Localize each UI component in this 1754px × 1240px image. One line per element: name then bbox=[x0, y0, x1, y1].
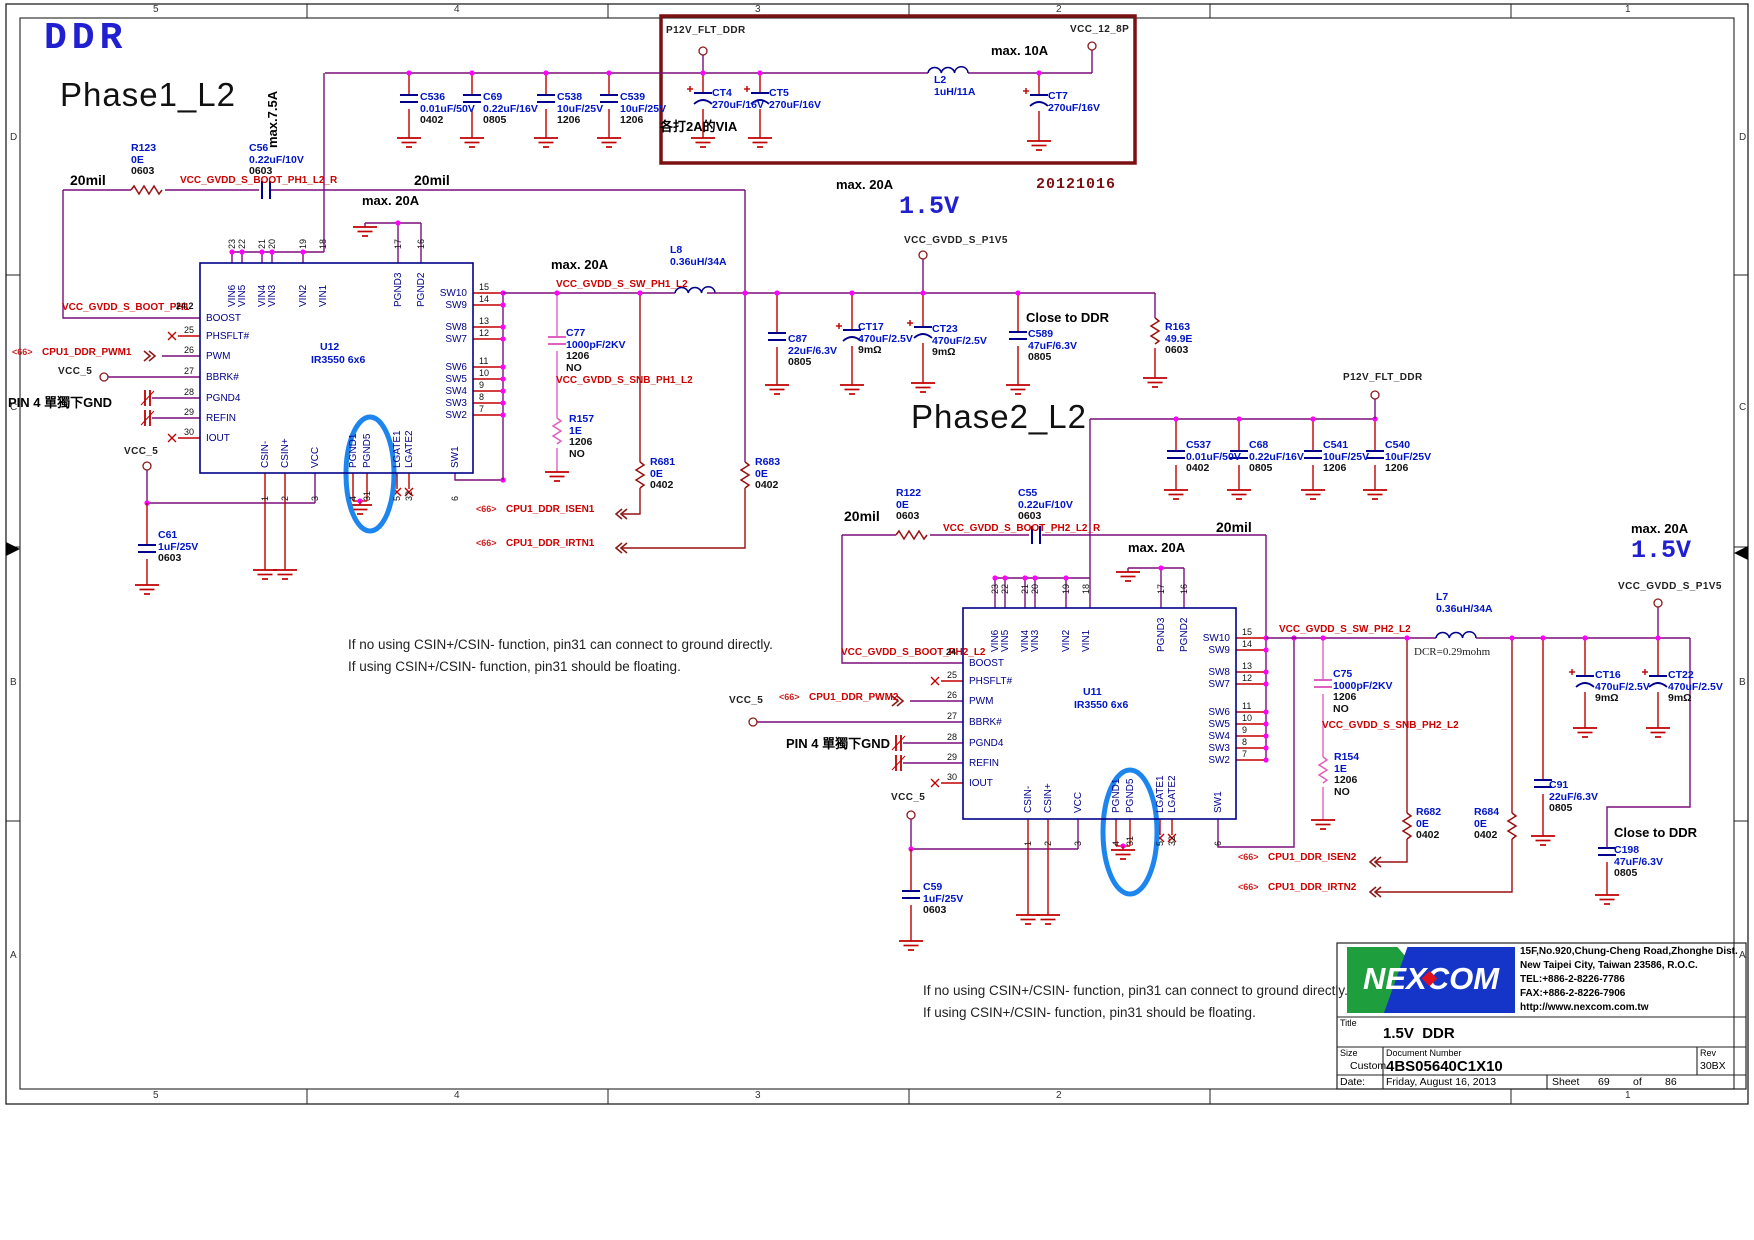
ic-right_pins-4-name: SW6 bbox=[445, 362, 467, 373]
comp-r682-ref: R682 bbox=[1416, 807, 1441, 818]
csin-note2-1: If using CSIN+/CSIN- function, pin31 sho… bbox=[348, 660, 681, 674]
ic-left_pins-2-name: PWM bbox=[969, 696, 993, 707]
grid-col-bot-0: 5 bbox=[153, 1091, 159, 1101]
comp-r123-fp: 0603 bbox=[131, 166, 154, 177]
comp-c589-fp: 0805 bbox=[1028, 352, 1051, 363]
grid-row-right-0: D bbox=[1739, 133, 1746, 143]
comp-c91-ref: C91 bbox=[1549, 780, 1568, 791]
ic-left_pins-5-name: REFIN bbox=[969, 758, 999, 769]
ic-left_pins-4-name: PGND4 bbox=[206, 393, 241, 404]
comp-c55-fp: 0603 bbox=[1018, 511, 1041, 522]
ic-top_pins-3-num: 20 bbox=[267, 239, 277, 249]
comp-ct22-val: 470uF/2.5V bbox=[1668, 682, 1723, 693]
ic-right_pins-6-num: 9 bbox=[1242, 725, 1247, 735]
comp-ct16-fp: 9mΩ bbox=[1595, 693, 1619, 704]
ic-left_pins-6-num: 30 bbox=[184, 427, 194, 437]
ic-left_pins-3-num: 27 bbox=[184, 366, 194, 376]
ic-top_pins-4-name: VIN2 bbox=[1061, 629, 1072, 652]
ic-right_pins-4-name: SW6 bbox=[1208, 707, 1230, 718]
ic-bottom_pins-1-num: 2 bbox=[280, 496, 290, 501]
ic-bottom_pins-7-num: 6 bbox=[1213, 841, 1223, 846]
ic-bottom_pins-3-num: 4 bbox=[1111, 841, 1121, 846]
ic-right_pins-0-name: SW10 bbox=[440, 288, 468, 299]
comp-r683-fp: 0402 bbox=[755, 480, 778, 491]
ic-bottom_pins-1-name: CSIN+ bbox=[1043, 783, 1054, 813]
ic-left_pins-1-name: PHSFLT# bbox=[206, 331, 250, 342]
ic-bottom_pins-5-name: LGATE1 bbox=[1155, 775, 1166, 813]
tb-size_value: Custom bbox=[1350, 1061, 1386, 1072]
comp-c541-val: 10uF/25V bbox=[1323, 452, 1369, 463]
ic-top_pins-6-num: 17 bbox=[1156, 584, 1166, 594]
ic-right_pins-8-num: 7 bbox=[1242, 749, 1247, 759]
comp-c198-ref: C198 bbox=[1614, 845, 1639, 856]
comp-ct23-val: 470uF/2.5V bbox=[932, 336, 987, 347]
comp-ct23-fp: 9mΩ bbox=[932, 347, 956, 358]
ic-left_pins-3-name: BBRK# bbox=[969, 717, 1002, 728]
comp-r681-fp: 0402 bbox=[650, 480, 673, 491]
comp-ct22-ref: CT22 bbox=[1668, 670, 1694, 681]
comp-ct5-val: 270uF/16V bbox=[769, 100, 821, 111]
ref66-irtn1: <66> bbox=[476, 539, 497, 548]
grid-col-top-0: 5 bbox=[153, 5, 159, 15]
ic-bottom_pins-6-num: 32 bbox=[1167, 836, 1177, 846]
ic-left_pins-6-name: IOUT bbox=[206, 433, 230, 444]
comp-c69-ref: C69 bbox=[483, 92, 502, 103]
comp-r681-val: 0E bbox=[650, 469, 663, 480]
comp-c538-val: 10uF/25V bbox=[557, 104, 603, 115]
ic-left_pins-1-num: 25 bbox=[184, 325, 194, 335]
comp-ct7-ref: CT7 bbox=[1048, 91, 1068, 102]
ic-left_pins-4-num: 28 bbox=[947, 732, 957, 742]
comp-c56-ref: C56 bbox=[249, 143, 268, 154]
ic-right_pins-5-name: SW5 bbox=[445, 374, 467, 385]
nets-boot2: VCC_GVDD_S_BOOT_PH2_L2 bbox=[841, 648, 986, 658]
ic-left_pins-3-num: 27 bbox=[947, 711, 957, 721]
comp-c91-val: 22uF/6.3V bbox=[1549, 792, 1598, 803]
nets-boot1r: VCC_GVDD_S_BOOT_PH1_L2_R bbox=[180, 176, 337, 186]
tb-size_label: Size bbox=[1340, 1049, 1358, 1058]
csin-note2-2: If using CSIN+/CSIN- function, pin31 sho… bbox=[923, 1006, 1256, 1020]
tb-addr1: 15F,No.920,Chung-Cheng Road,Zhonghe Dist… bbox=[1520, 947, 1738, 957]
close-ddr-2: Close to DDR bbox=[1614, 826, 1697, 839]
grid-row-left-2: B bbox=[10, 678, 17, 688]
comp-c68-ref: C68 bbox=[1249, 440, 1268, 451]
nets-snb1: VCC_GVDD_S_SNB_PH1_L2 bbox=[556, 376, 693, 386]
ic-right_pins-2-name: SW8 bbox=[1208, 667, 1230, 678]
ic-top_pins-6-name: PGND3 bbox=[393, 272, 404, 307]
ref66-isen2: <66> bbox=[1238, 853, 1259, 862]
port-p1v5-2: VCC_GVDD_S_P1V5 bbox=[1618, 582, 1722, 592]
comp-ct5-ref: CT5 bbox=[769, 88, 789, 99]
ic-top_pins-4-num: 19 bbox=[1061, 584, 1071, 594]
comp-c56-fp: 0603 bbox=[249, 166, 272, 177]
comp-r163-ref: R163 bbox=[1165, 322, 1190, 333]
ic-bottom_pins-5-num: 5 bbox=[392, 496, 402, 501]
ic-right_pins-5-name: SW5 bbox=[1208, 719, 1230, 730]
ic-bottom_pins-2-num: 3 bbox=[310, 496, 320, 501]
ic-top_pins-6-num: 17 bbox=[393, 239, 403, 249]
comp-ct17-val: 470uF/2.5V bbox=[858, 334, 913, 345]
pin4-note-2: PIN 4 單獨下GND bbox=[786, 737, 890, 750]
tb-fax: FAX:+886-2-8226-7906 bbox=[1520, 989, 1625, 999]
comp-c539-fp: 1206 bbox=[620, 115, 643, 126]
close-ddr-1: Close to DDR bbox=[1026, 311, 1109, 324]
nets-isen1: CPU1_DDR_ISEN1 bbox=[506, 505, 594, 515]
ic-right_pins-6-name: SW4 bbox=[1208, 731, 1230, 742]
max-20a-5: max. 20A bbox=[1631, 522, 1688, 535]
ic-right_pins-0-num: 15 bbox=[1242, 627, 1252, 637]
ic-u12-ref: U12 bbox=[320, 342, 339, 353]
ic-right_pins-5-num: 10 bbox=[1242, 713, 1252, 723]
mil20-2: 20mil bbox=[414, 173, 450, 187]
comp-c75-fp: 1206 bbox=[1333, 692, 1356, 703]
ic-bottom_pins-5-name: LGATE1 bbox=[392, 430, 403, 468]
comp-r681-ref: R681 bbox=[650, 457, 675, 468]
comp-c537-ref: C537 bbox=[1186, 440, 1211, 451]
grid-row-right-2: B bbox=[1739, 678, 1746, 688]
comp-c55-val: 0.22uF/10V bbox=[1018, 500, 1073, 511]
tb-rev_label: Rev bbox=[1700, 1049, 1716, 1058]
ic-top_pins-0-num: 23 bbox=[227, 239, 237, 249]
comp-r163-val: 49.9E bbox=[1165, 334, 1192, 345]
grid-row-left-0: D bbox=[10, 133, 17, 143]
ic-bottom_pins-6-name: LGATE2 bbox=[1167, 775, 1178, 813]
comp-r154-val: 1E bbox=[1334, 764, 1347, 775]
comp-l8-val: 0.36uH/34A bbox=[670, 257, 727, 268]
csin-note1-2: If no using CSIN+/CSIN- function, pin31 … bbox=[923, 984, 1348, 998]
comp-ct17-ref: CT17 bbox=[858, 322, 884, 333]
ic-left_pins-1-name: PHSFLT# bbox=[969, 676, 1013, 687]
ic-top_pins-1-num: 22 bbox=[237, 239, 247, 249]
comp-c77-ref: C77 bbox=[566, 328, 585, 339]
ic-left_pins-0-name: BOOST bbox=[206, 313, 241, 324]
comp-r683-val: 0E bbox=[755, 469, 768, 480]
nets-boot2r: VCC_GVDD_S_BOOT_PH2_L2_R bbox=[943, 524, 1100, 534]
ic-top_pins-3-name: VIN3 bbox=[267, 284, 278, 307]
vcc5-2: VCC_5 bbox=[124, 447, 158, 457]
ic-right_pins-7-num: 8 bbox=[479, 392, 484, 402]
comp-l2-ref: L2 bbox=[934, 75, 946, 86]
tb-sheet_total: 86 bbox=[1665, 1077, 1677, 1088]
comp-r122-val: 0E bbox=[896, 500, 909, 511]
comp-l7-val: 0.36uH/34A bbox=[1436, 604, 1493, 615]
ic-bottom_pins-6-name: LGATE2 bbox=[404, 430, 415, 468]
ic-left_pins-5-name: REFIN bbox=[206, 413, 236, 424]
comp-c77-fp: 1206 bbox=[566, 351, 589, 362]
ic-left_pins-6-num: 30 bbox=[947, 772, 957, 782]
comp-c91-fp: 0805 bbox=[1549, 803, 1572, 814]
ic-bottom_pins-6-num: 32 bbox=[404, 491, 414, 501]
comp-c77-val: 1000pF/2KV bbox=[566, 340, 626, 351]
vcc5-3: VCC_5 bbox=[729, 696, 763, 706]
ic-top_pins-5-num: 18 bbox=[1081, 584, 1091, 594]
comp-ct17-fp: 9mΩ bbox=[858, 345, 882, 356]
tb-tel: TEL:+886-2-8226-7786 bbox=[1520, 975, 1625, 985]
comp-c538-fp: 1206 bbox=[557, 115, 580, 126]
ic-right_pins-6-name: SW4 bbox=[445, 386, 467, 397]
comp-c87-val: 22uF/6.3V bbox=[788, 346, 837, 357]
ic-right_pins-1-name: SW9 bbox=[1208, 645, 1230, 656]
comp-c538-ref: C538 bbox=[557, 92, 582, 103]
comp-ct16-ref: CT16 bbox=[1595, 670, 1621, 681]
ic-bottom_pins-1-name: CSIN+ bbox=[280, 438, 291, 468]
csin-note1-1: If no using CSIN+/CSIN- function, pin31 … bbox=[348, 638, 773, 652]
ic-top_pins-3-num: 20 bbox=[1030, 584, 1040, 594]
ic-top_pins-2-num: 21 bbox=[1020, 584, 1030, 594]
comp-c87-ref: C87 bbox=[788, 334, 807, 345]
grid-row-right-1: C bbox=[1739, 403, 1746, 413]
comp-c540-val: 10uF/25V bbox=[1385, 452, 1431, 463]
ic-bottom_pins-3-name: PGND1 bbox=[348, 433, 359, 468]
comp-c540-fp: 1206 bbox=[1385, 463, 1408, 474]
ref66-irtn2: <66> bbox=[1238, 883, 1259, 892]
grid-col-bot-4: 1 bbox=[1625, 1091, 1631, 1101]
comp-c69-val: 0.22uF/16V bbox=[483, 104, 538, 115]
ic-top_pins-4-num: 19 bbox=[298, 239, 308, 249]
comp-c589-ref: C589 bbox=[1028, 329, 1053, 340]
nexcom-logo: NEXCOM bbox=[1347, 947, 1515, 1013]
ic-bottom_pins-7-num: 6 bbox=[450, 496, 460, 501]
ic-right_pins-0-num: 15 bbox=[479, 282, 489, 292]
max-10a: max. 10A bbox=[991, 44, 1048, 57]
comp-r154-no: NO bbox=[1334, 787, 1350, 798]
comp-r683-ref: R683 bbox=[755, 457, 780, 468]
ic-top_pins-5-name: VIN1 bbox=[1081, 629, 1092, 652]
ic-top_pins-5-name: VIN1 bbox=[318, 284, 329, 307]
ic-u11-ref: U11 bbox=[1083, 687, 1102, 698]
ic-bottom_pins-0-num: 1 bbox=[1023, 841, 1033, 846]
tb-doc_label: Document Number bbox=[1386, 1049, 1462, 1058]
grid-col-top-1: 4 bbox=[454, 5, 460, 15]
tb-url: http://www.nexcom.com.tw bbox=[1520, 1003, 1649, 1013]
ic-left_pins-5-num: 29 bbox=[947, 752, 957, 762]
ic-bottom_pins-4-num: 31 bbox=[362, 491, 372, 501]
ic-left_pins-2-num: 26 bbox=[947, 690, 957, 700]
ref66-pwm2: <66> bbox=[779, 693, 800, 702]
tb-date_label: Date: bbox=[1340, 1077, 1365, 1088]
ic-left_pins-2-name: PWM bbox=[206, 351, 230, 362]
comp-r157-ref: R157 bbox=[569, 414, 594, 425]
ic-bottom_pins-2-name: VCC bbox=[1073, 792, 1084, 813]
ic-top_pins-2-num: 21 bbox=[257, 239, 267, 249]
comp-r684-ref: R684 bbox=[1474, 807, 1499, 818]
ic-right_pins-3-num: 12 bbox=[479, 328, 489, 338]
tb-addr2: New Taipei City, Taiwan 23586, R.O.C. bbox=[1520, 961, 1698, 971]
nets-pwm2: CPU1_DDR_PWM2 bbox=[809, 693, 898, 703]
tb-of_label: of bbox=[1633, 1077, 1642, 1088]
comp-c59-ref: C59 bbox=[923, 882, 942, 893]
ic-left_pins-2-num: 26 bbox=[184, 345, 194, 355]
ic-top_pins-7-num: 16 bbox=[1179, 584, 1189, 594]
port-p1v5-1: VCC_GVDD_S_P1V5 bbox=[904, 236, 1008, 246]
ic-top_pins-5-num: 18 bbox=[318, 239, 328, 249]
ic-top_pins-3-name: VIN3 bbox=[1030, 629, 1041, 652]
port-p12v-1: P12V_FLT_DDR bbox=[666, 26, 746, 36]
max-20a-2: max. 20A bbox=[551, 258, 608, 271]
comp-c55-ref: C55 bbox=[1018, 488, 1037, 499]
tb-sheet_no: 69 bbox=[1598, 1077, 1610, 1088]
ic-bottom_pins-4-name: PGND5 bbox=[362, 433, 373, 468]
ic-top_pins-7-name: PGND2 bbox=[1179, 617, 1190, 652]
phase2-title: Phase2_L2 bbox=[911, 400, 1087, 433]
ic-bottom_pins-0-name: CSIN- bbox=[260, 441, 271, 468]
page-title-ddr: DDR bbox=[44, 20, 127, 58]
ic-right_pins-3-name: SW7 bbox=[1208, 679, 1230, 690]
comp-c539-val: 10uF/25V bbox=[620, 104, 666, 115]
comp-r157-no: NO bbox=[569, 449, 585, 460]
nets-boot2pin: 24 bbox=[946, 648, 956, 657]
ic-u11-part: IR3550 6x6 bbox=[1074, 700, 1128, 711]
comp-c68-val: 0.22uF/16V bbox=[1249, 452, 1304, 463]
comp-c75-no: NO bbox=[1333, 704, 1349, 715]
comp-c61-ref: C61 bbox=[158, 530, 177, 541]
comp-c539-ref: C539 bbox=[620, 92, 645, 103]
comp-c75-ref: C75 bbox=[1333, 669, 1352, 680]
ic-bottom_pins-3-name: PGND1 bbox=[1111, 778, 1122, 813]
dcr-note: DCR=0.29mohm bbox=[1414, 647, 1490, 658]
ic-top_pins-1-name: VIN5 bbox=[1000, 629, 1011, 652]
grid-col-top-3: 2 bbox=[1056, 5, 1062, 15]
comp-c537-fp: 0402 bbox=[1186, 463, 1209, 474]
comp-c59-fp: 0603 bbox=[923, 905, 946, 916]
grid-col-bot-3: 2 bbox=[1056, 1091, 1062, 1101]
nets-irtn2: CPU1_DDR_IRTN2 bbox=[1268, 883, 1356, 893]
comp-c61-fp: 0603 bbox=[158, 553, 181, 564]
ic-right_pins-7-num: 8 bbox=[1242, 737, 1247, 747]
ic-right_pins-7-name: SW3 bbox=[445, 398, 467, 409]
ic-top_pins-0-num: 23 bbox=[990, 584, 1000, 594]
comp-c68-fp: 0805 bbox=[1249, 463, 1272, 474]
comp-r123-val: 0E bbox=[131, 155, 144, 166]
comp-c536-ref: C536 bbox=[420, 92, 445, 103]
ic-right_pins-0-name: SW10 bbox=[1203, 633, 1231, 644]
port-p12v-2: P12V_FLT_DDR bbox=[1343, 373, 1423, 383]
comp-r157-val: 1E bbox=[569, 426, 582, 437]
vcc5-1: VCC_5 bbox=[58, 367, 92, 377]
tb-sheet_label: Sheet bbox=[1552, 1077, 1579, 1088]
nets-swph1: VCC_GVDD_S_SW_PH1_L2 bbox=[556, 280, 688, 290]
ic-right_pins-4-num: 11 bbox=[1242, 701, 1251, 711]
ic-bottom_pins-2-name: VCC bbox=[310, 447, 321, 468]
comp-c56-val: 0.22uF/10V bbox=[249, 155, 304, 166]
mil20-1: 20mil bbox=[70, 173, 106, 187]
ic-u12-part: IR3550 6x6 bbox=[311, 355, 365, 366]
grid-col-bot-1: 4 bbox=[454, 1091, 460, 1101]
date-code: 20121016 bbox=[1036, 177, 1116, 192]
comp-c536-val: 0.01uF/50V bbox=[420, 104, 475, 115]
mil20-3: 20mil bbox=[844, 509, 880, 523]
ic-left_pins-0-name: BOOST bbox=[969, 658, 1004, 669]
grid-col-top-2: 3 bbox=[755, 5, 761, 15]
ic-top_pins-7-name: PGND2 bbox=[416, 272, 427, 307]
tb-doc: 4BS05640C1X10 bbox=[1386, 1059, 1503, 1074]
ic-bottom_pins-2-num: 3 bbox=[1073, 841, 1083, 846]
phase1-title: Phase1_L2 bbox=[60, 78, 236, 111]
ic-right_pins-8-name: SW2 bbox=[1208, 755, 1230, 766]
ic-bottom_pins-4-name: PGND5 bbox=[1125, 778, 1136, 813]
tb-date: Friday, August 16, 2013 bbox=[1386, 1077, 1496, 1088]
ic-bottom_pins-7-name: SW1 bbox=[450, 446, 461, 468]
ic-left_pins-4-name: PGND4 bbox=[969, 738, 1004, 749]
tb-rev: 30BX bbox=[1700, 1061, 1726, 1072]
ic-bottom_pins-3-num: 4 bbox=[348, 496, 358, 501]
comp-c198-val: 47uF/6.3V bbox=[1614, 857, 1663, 868]
ic-left_pins-1-num: 25 bbox=[947, 670, 957, 680]
mil20-4: 20mil bbox=[1216, 520, 1252, 534]
comp-r122-ref: R122 bbox=[896, 488, 921, 499]
nets-boot1pin: 24.2 bbox=[176, 302, 194, 311]
grid-row-right-3: A bbox=[1739, 951, 1746, 961]
tb-title_label: Title bbox=[1340, 1019, 1357, 1028]
comp-c198-fp: 0805 bbox=[1614, 868, 1637, 879]
comp-c589-val: 47uF/6.3V bbox=[1028, 341, 1077, 352]
port-vcc12: VCC_12_8P bbox=[1070, 25, 1129, 35]
comp-r163-fp: 0603 bbox=[1165, 345, 1188, 356]
ic-right_pins-2-name: SW8 bbox=[445, 322, 467, 333]
ic-right_pins-6-num: 9 bbox=[479, 380, 484, 390]
comp-r122-fp: 0603 bbox=[896, 511, 919, 522]
ic-bottom_pins-5-num: 5 bbox=[1155, 841, 1165, 846]
max-20a-4: max. 20A bbox=[1128, 541, 1185, 554]
comp-r682-fp: 0402 bbox=[1416, 830, 1439, 841]
ic-bottom_pins-0-name: CSIN- bbox=[1023, 786, 1034, 813]
via-note: 各打2A的VIA bbox=[660, 120, 737, 133]
ic-right_pins-1-name: SW9 bbox=[445, 300, 467, 311]
ic-left_pins-3-name: BBRK# bbox=[206, 372, 239, 383]
ic-right_pins-2-num: 13 bbox=[479, 316, 489, 326]
grid-row-left-1: C bbox=[10, 403, 17, 413]
comp-l7-ref: L7 bbox=[1436, 592, 1448, 603]
ic-right_pins-1-num: 14 bbox=[479, 294, 489, 304]
comp-c69-fp: 0805 bbox=[483, 115, 506, 126]
ic-right_pins-3-name: SW7 bbox=[445, 334, 467, 345]
comp-c77-no: NO bbox=[566, 363, 582, 374]
comp-r684-fp: 0402 bbox=[1474, 830, 1497, 841]
comp-ct4-val: 270uF/16V bbox=[712, 100, 764, 111]
ref66-isen1: <66> bbox=[476, 505, 497, 514]
ref66-pwm1: <66> bbox=[12, 348, 33, 357]
ic-bottom_pins-1-num: 2 bbox=[1043, 841, 1053, 846]
grid-row-left-3: A bbox=[10, 951, 17, 961]
comp-r157-fp: 1206 bbox=[569, 437, 592, 448]
comp-l8-ref: L8 bbox=[670, 245, 682, 256]
comp-ct7-val: 270uF/16V bbox=[1048, 103, 1100, 114]
comp-r154-ref: R154 bbox=[1334, 752, 1359, 763]
ic-right_pins-8-name: SW2 bbox=[445, 410, 467, 421]
ic-right_pins-5-num: 10 bbox=[479, 368, 489, 378]
comp-c59-val: 1uF/25V bbox=[923, 894, 963, 905]
comp-l2-val: 1uH/11A bbox=[934, 87, 975, 98]
ic-left_pins-4-num: 28 bbox=[184, 387, 194, 397]
comp-r684-val: 0E bbox=[1474, 819, 1487, 830]
comp-c541-ref: C541 bbox=[1323, 440, 1348, 451]
comp-ct22-fp: 9mΩ bbox=[1668, 693, 1692, 704]
comp-ct23-ref: CT23 bbox=[932, 324, 958, 335]
ic-top_pins-4-name: VIN2 bbox=[298, 284, 309, 307]
comp-c87-fp: 0805 bbox=[788, 357, 811, 368]
comp-c75-val: 1000pF/2KV bbox=[1333, 681, 1393, 692]
comp-c537-val: 0.01uF/50V bbox=[1186, 452, 1241, 463]
nets-pwm1: CPU1_DDR_PWM1 bbox=[42, 348, 131, 358]
ic-right_pins-4-num: 11 bbox=[479, 356, 488, 366]
comp-r682-val: 0E bbox=[1416, 819, 1429, 830]
comp-c61-val: 1uF/25V bbox=[158, 542, 198, 553]
ic-left_pins-5-num: 29 bbox=[184, 407, 194, 417]
nets-swph2: VCC_GVDD_S_SW_PH2_L2 bbox=[1279, 625, 1411, 635]
ic-top_pins-6-name: PGND3 bbox=[1156, 617, 1167, 652]
tb-title: 1.5V DDR bbox=[1383, 1026, 1455, 1041]
ic-top_pins-1-num: 22 bbox=[1000, 584, 1010, 594]
